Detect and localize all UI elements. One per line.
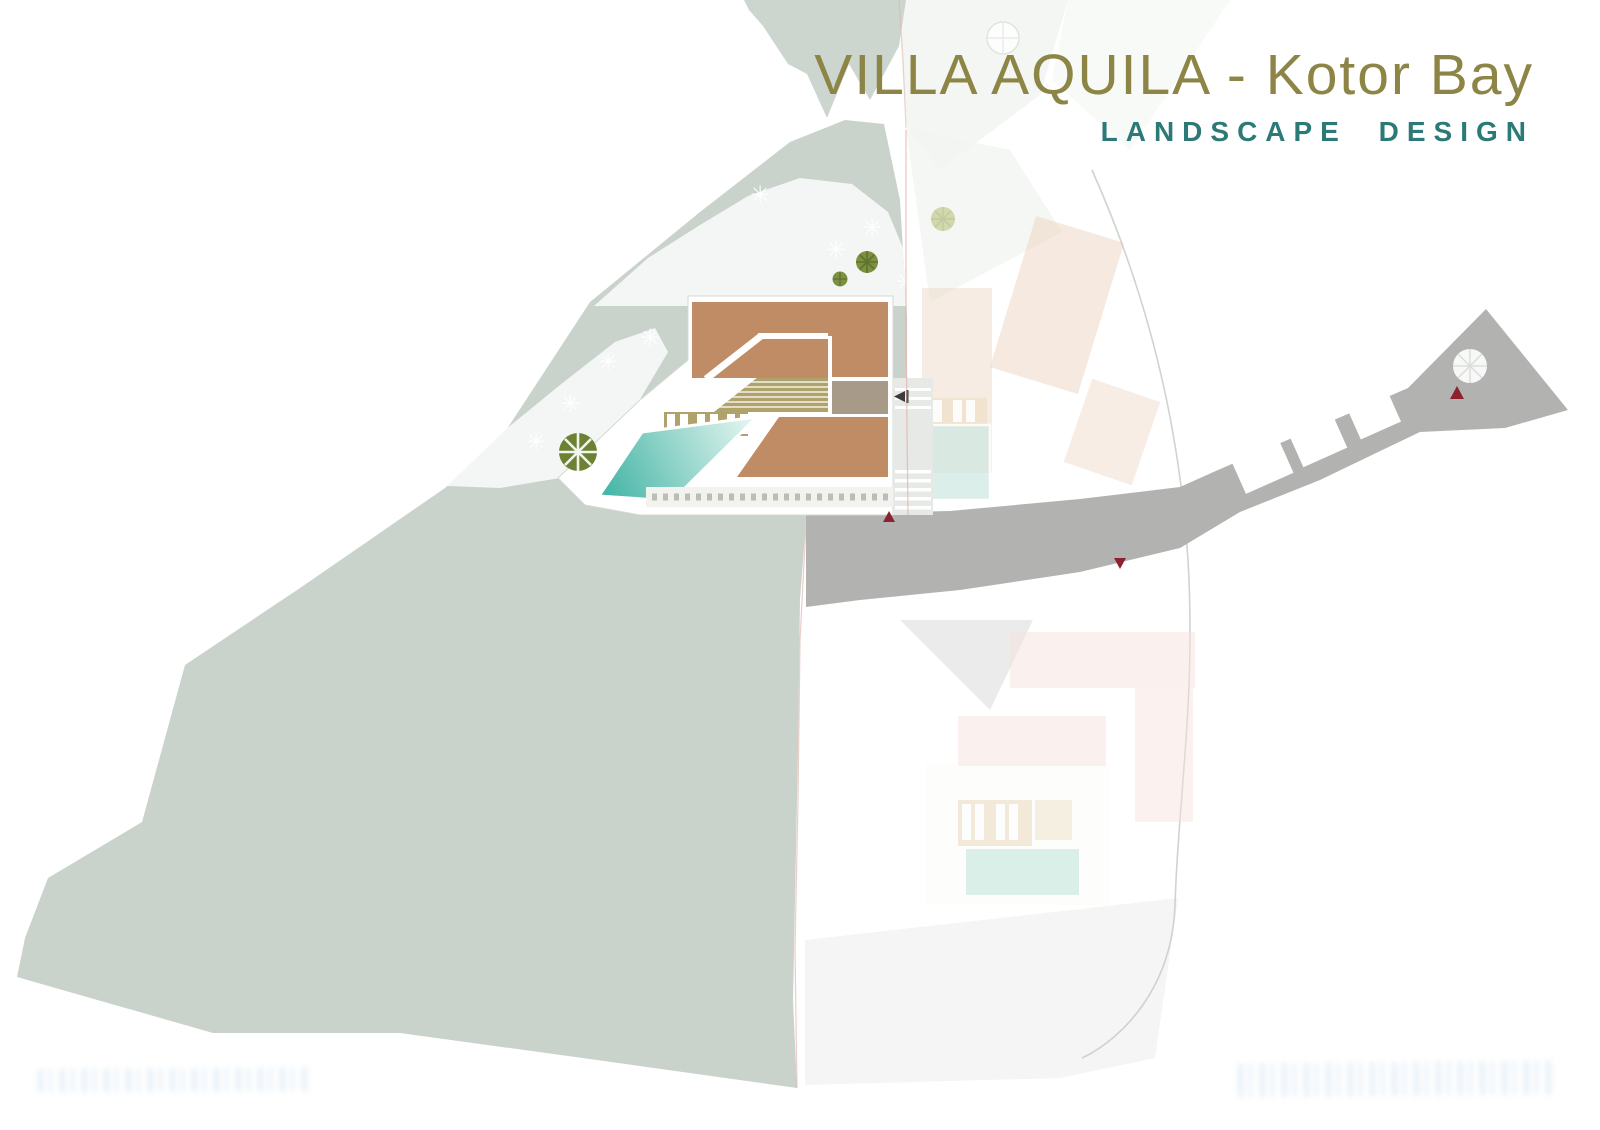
pebble-path: [646, 487, 893, 507]
villa-room-gray: [832, 381, 888, 414]
neighbor-villa-lower: [900, 620, 1195, 905]
tree-canopy-icon-road: [1453, 349, 1487, 383]
watermark-bottom-left: [38, 1067, 313, 1093]
page-subtitle: LANDSCAPE DESIGN: [814, 116, 1534, 148]
tree-canopy-icon: [856, 251, 878, 273]
landscape-plan-canvas: ✳✳ ✳✳ ✳✳ ✳✳: [0, 0, 1600, 1130]
svg-text:✳: ✳: [862, 214, 882, 242]
tree-canopy-icon: [833, 272, 848, 287]
svg-text:✳: ✳: [640, 324, 660, 352]
roof-joint-line: [828, 336, 832, 414]
roof-walkway-horizontal: [758, 333, 828, 339]
svg-text:✳: ✳: [526, 428, 546, 456]
tree-canopy-icon-faded: [931, 207, 955, 231]
watermark-bottom-right: [1238, 1060, 1553, 1097]
svg-text:✳: ✳: [750, 181, 770, 209]
red-triangle-marker-icon: [1114, 558, 1126, 569]
title-block: VILLA AQUILA - Kotor Bay LANDSCAPE DESIG…: [814, 44, 1534, 148]
svg-text:✳: ✳: [826, 236, 846, 264]
terrain-wash-lower-right: [805, 898, 1178, 1085]
tree-canopy-icon-palm: [559, 433, 597, 471]
site-plan-drawing: ✳✳ ✳✳ ✳✳ ✳✳: [0, 0, 1600, 1130]
lower-villa-roof-b: [1135, 688, 1193, 822]
svg-text:✳: ✳: [560, 390, 580, 418]
neighbor-roof-c: [1064, 379, 1161, 486]
lower-villa-deck-pad: [1035, 800, 1072, 840]
page-title: VILLA AQUILA - Kotor Bay: [814, 44, 1534, 107]
lower-villa-pool: [965, 848, 1080, 896]
lower-villa-roof-c: [958, 716, 1106, 766]
roof-joint-line: [832, 377, 888, 381]
svg-text:✳: ✳: [598, 348, 618, 376]
lower-villa-roof-a: [1010, 632, 1195, 688]
